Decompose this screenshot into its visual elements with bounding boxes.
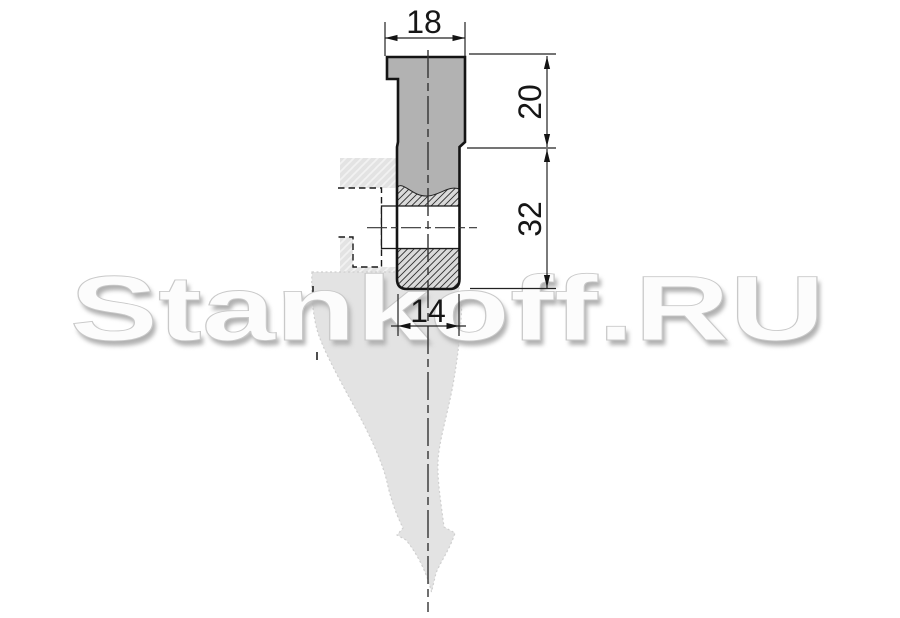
- dim-shank-width: 18: [385, 4, 465, 56]
- dim-shank-height: 20: [467, 54, 556, 148]
- dim-18-arrow-left: [385, 35, 398, 41]
- dim-32-arrow-top: [544, 150, 550, 163]
- dim-20-arrow-bottom: [544, 134, 550, 147]
- dim-14-label: 14: [410, 293, 446, 329]
- dim-32-label: 32: [512, 201, 548, 237]
- dim-18-arrow-right: [453, 35, 466, 41]
- dim-18-label: 18: [406, 4, 442, 40]
- dim-20-label: 20: [512, 84, 548, 120]
- drawing-canvas: Stankoff.RU Stankoff.RU 18 20: [0, 0, 900, 618]
- dim-20-arrow-top: [544, 57, 550, 70]
- punch-technical-drawing: Stankoff.RU Stankoff.RU 18 20: [0, 0, 900, 618]
